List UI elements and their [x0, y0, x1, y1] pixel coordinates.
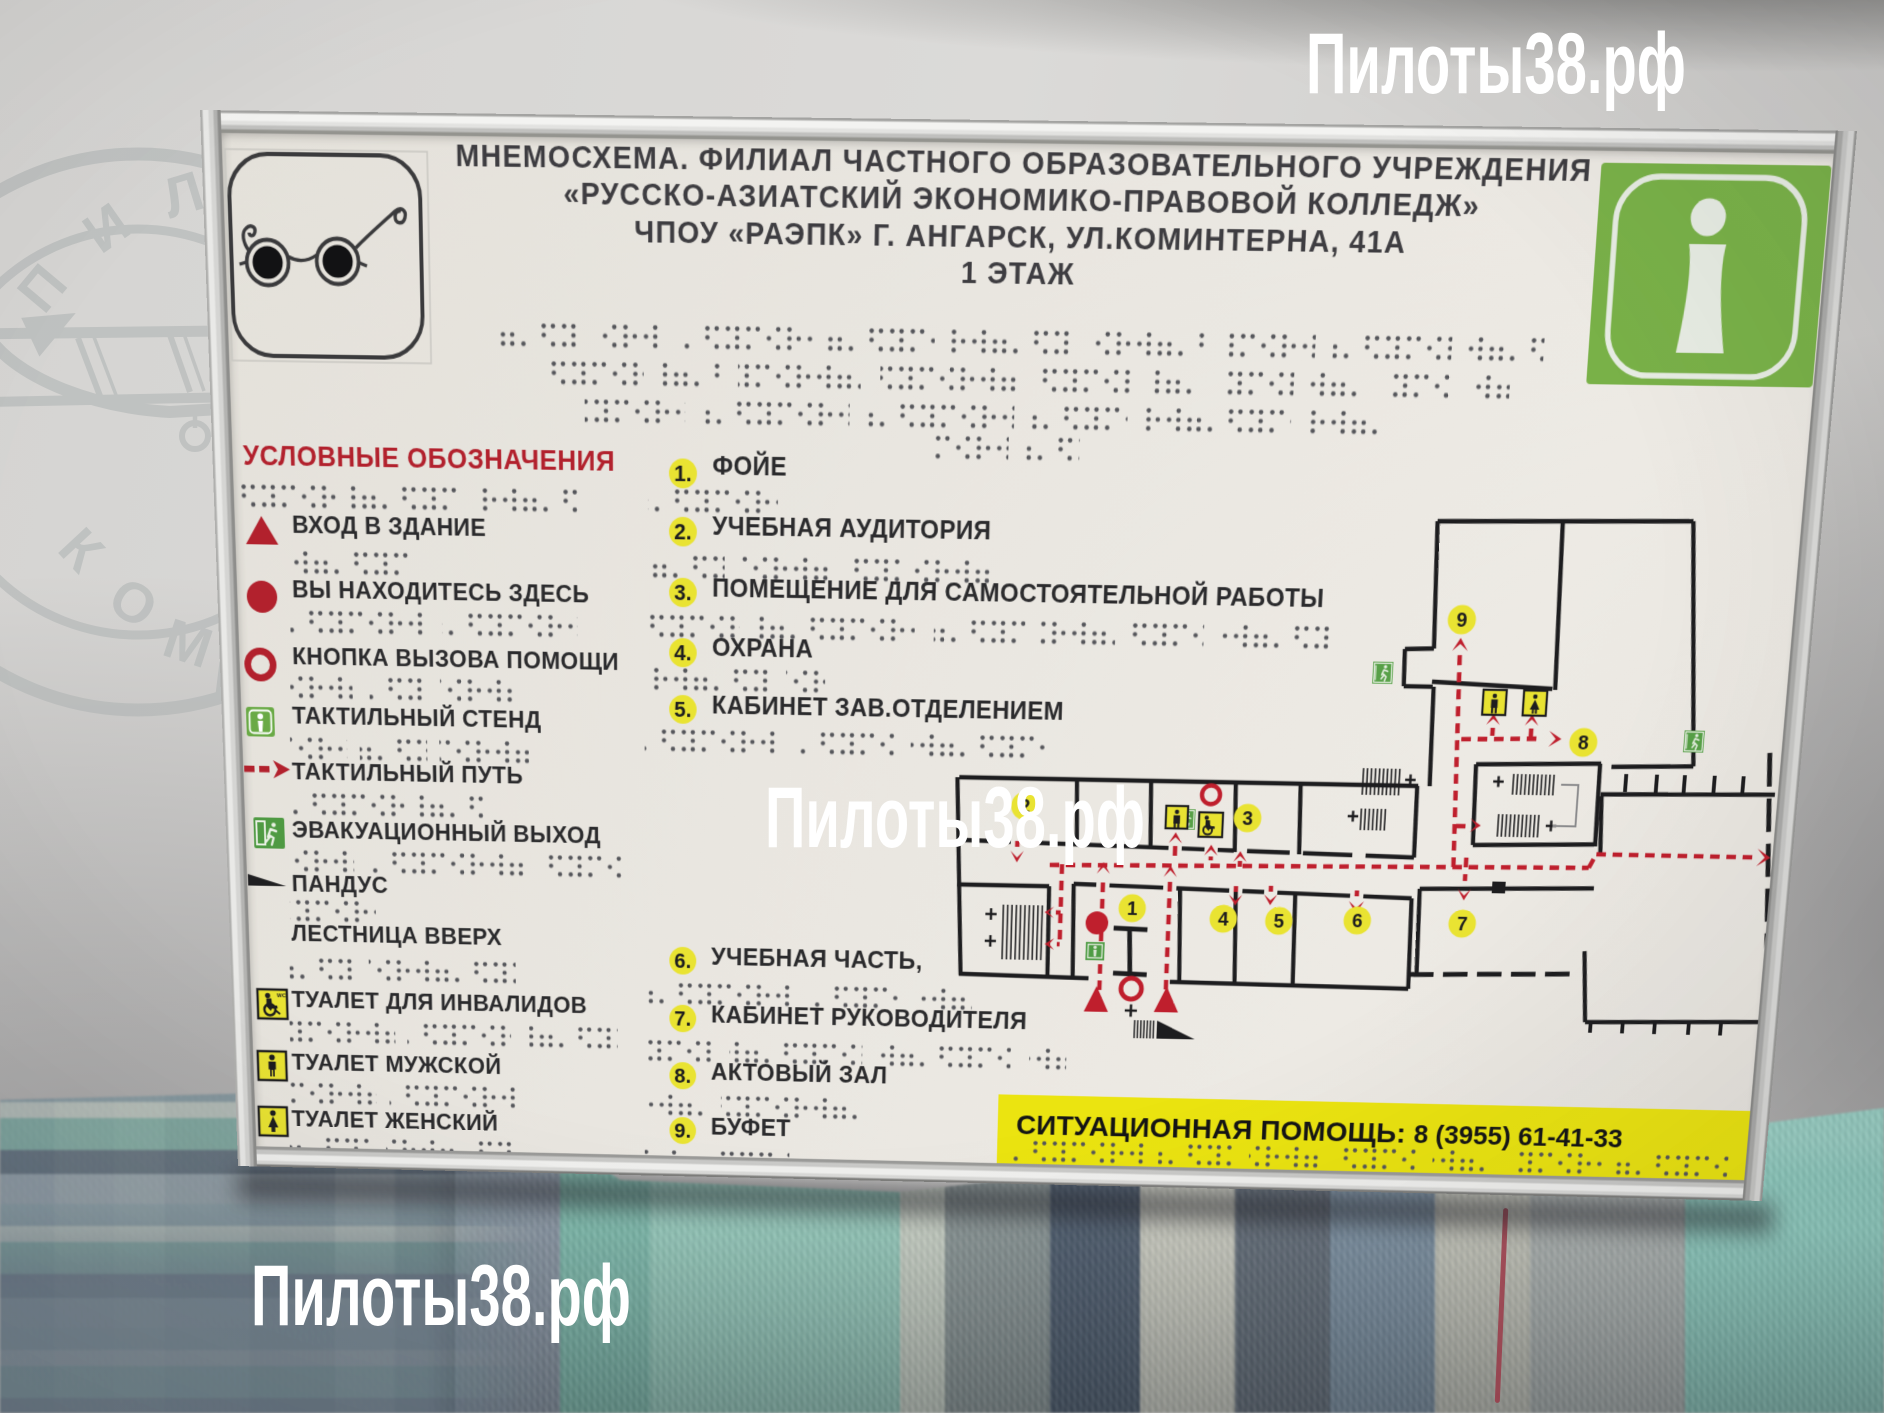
svg-text:8: 8: [1577, 732, 1589, 754]
svg-text:9: 9: [1456, 609, 1468, 632]
svg-text:3: 3: [1242, 808, 1254, 830]
svg-text:5: 5: [1273, 911, 1285, 933]
svg-text:WC: WC: [277, 993, 287, 1000]
svg-text:6: 6: [1351, 910, 1363, 932]
svg-text:1: 1: [1127, 898, 1138, 920]
svg-text:4: 4: [1218, 909, 1230, 931]
svg-text:7: 7: [1456, 913, 1468, 935]
